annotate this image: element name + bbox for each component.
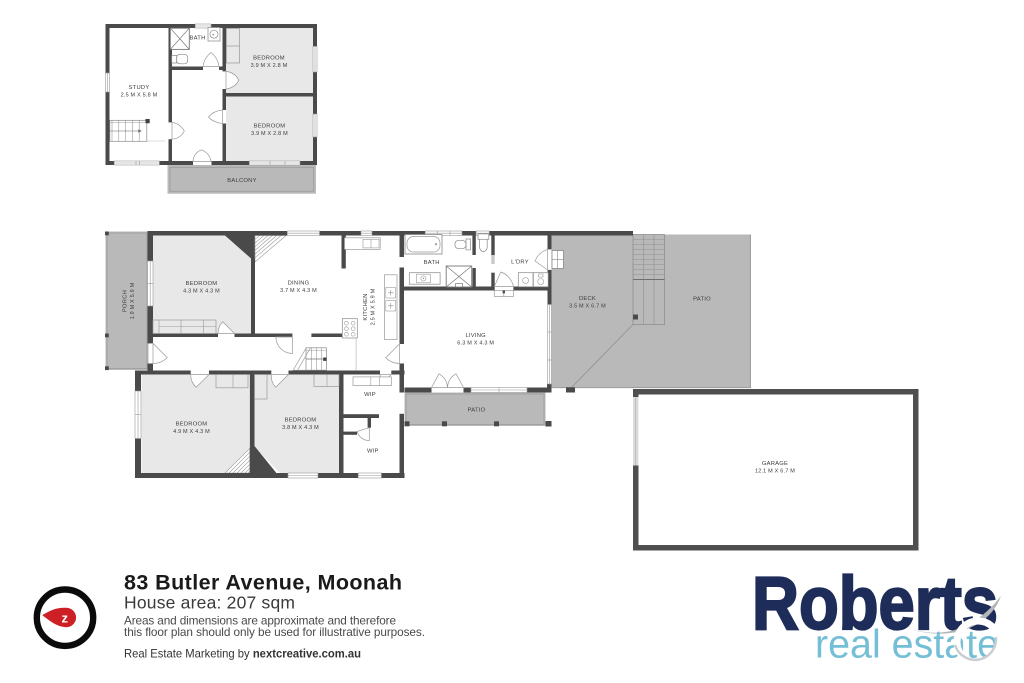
svg-text:DECK: DECK (579, 296, 596, 302)
svg-text:3.5 M X 6.7 M: 3.5 M X 6.7 M (569, 304, 606, 310)
svg-text:4.9 M X 4.3 M: 4.9 M X 4.3 M (173, 429, 210, 435)
svg-text:BEDROOM: BEDROOM (285, 418, 317, 424)
svg-text:House area: 207 sqm: House area: 207 sqm (124, 593, 295, 613)
svg-text:BATH: BATH (189, 36, 205, 42)
svg-text:BATH: BATH (424, 260, 440, 266)
svg-text:WIP: WIP (367, 449, 379, 455)
svg-text:BEDROOM: BEDROOM (254, 124, 286, 130)
svg-text:BEDROOM: BEDROOM (176, 422, 208, 428)
svg-text:BEDROOM: BEDROOM (186, 281, 218, 287)
svg-text:2.5 M X 5.9 M: 2.5 M X 5.9 M (371, 288, 377, 325)
svg-text:L'DRY: L'DRY (511, 260, 529, 266)
svg-text:LIVING: LIVING (465, 333, 486, 339)
svg-text:DINING: DINING (288, 281, 310, 287)
svg-text:3.9 M X 2.8 M: 3.9 M X 2.8 M (251, 131, 288, 137)
svg-text:12.1 M X 6.7 M: 12.1 M X 6.7 M (755, 469, 795, 475)
svg-text:1.9 M X 5.9 M: 1.9 M X 5.9 M (130, 282, 136, 319)
svg-text:Real Estate Marketing by nextc: Real Estate Marketing by nextcreative.co… (124, 647, 361, 661)
svg-text:BALCONY: BALCONY (227, 178, 256, 184)
svg-text:4.3 M X 4.3 M: 4.3 M X 4.3 M (183, 289, 220, 295)
svg-text:3.7 M X 4.3 M: 3.7 M X 4.3 M (280, 288, 317, 294)
svg-text:BEDROOM: BEDROOM (253, 56, 285, 62)
svg-text:3.8 M X 4.3 M: 3.8 M X 4.3 M (282, 425, 319, 431)
svg-text:STUDY: STUDY (129, 85, 150, 91)
svg-text:PORCH: PORCH (123, 290, 129, 312)
svg-text:2.5 M X 5.8 M: 2.5 M X 5.8 M (121, 93, 158, 99)
svg-text:KITCHEN: KITCHEN (363, 293, 369, 320)
svg-text:this floor plan should only be: this floor plan should only be used for … (124, 625, 425, 639)
svg-text:3.9 M X 2.8 M: 3.9 M X 2.8 M (251, 63, 288, 69)
svg-text:83 Butler Avenue, Moonah: 83 Butler Avenue, Moonah (124, 571, 402, 595)
svg-text:PATIO: PATIO (468, 408, 486, 414)
svg-text:WIP: WIP (364, 392, 376, 398)
svg-text:z: z (62, 610, 69, 625)
svg-text:GARAGE: GARAGE (762, 461, 788, 467)
svg-text:6.3 M X 4.3 M: 6.3 M X 4.3 M (457, 341, 494, 347)
svg-text:PATIO: PATIO (693, 297, 711, 303)
